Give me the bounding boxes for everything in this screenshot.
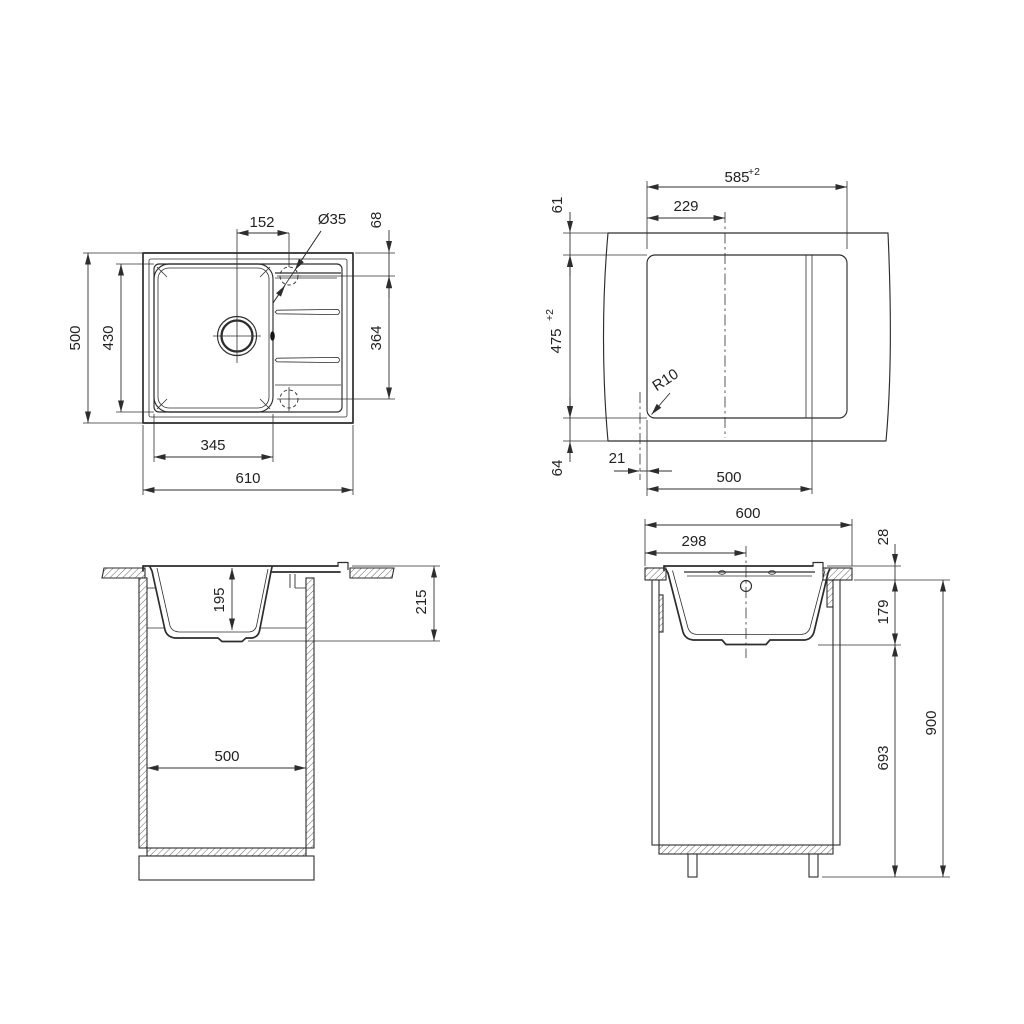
- dim-610: 610: [143, 425, 353, 495]
- dim-label-215: 215: [413, 589, 430, 614]
- sink-depression-edge: [154, 264, 342, 412]
- overflow-mark: [270, 331, 275, 341]
- dim-64: 64: [549, 397, 608, 476]
- dim-label-68: 68: [368, 212, 385, 229]
- cabinet-leg-right: [809, 854, 818, 877]
- dim-label-229: 229: [673, 198, 698, 215]
- cabinet-section: [139, 578, 314, 880]
- cutout-rect: [647, 255, 847, 418]
- dim-label-500: 500: [67, 325, 84, 350]
- dim-label-64: 64: [549, 460, 566, 477]
- drainboard: [275, 273, 341, 385]
- dim-label-d35: Ø35: [318, 211, 346, 228]
- countertop-left-block: [645, 568, 666, 580]
- cabinet-plinth: [139, 856, 314, 880]
- dim-label-r10: R10: [649, 366, 681, 395]
- dim-900: 900: [923, 580, 943, 877]
- dim-label-21: 21: [609, 450, 626, 467]
- dim-345: 345: [154, 414, 273, 462]
- dim-229: 229: [647, 198, 725, 218]
- sink-rim-line: [149, 259, 347, 417]
- dim-label-195: 195: [211, 587, 228, 612]
- drainboard-groove: [275, 357, 340, 362]
- dim-693: 693: [822, 645, 950, 877]
- dim-500-cutout: 500: [647, 469, 812, 489]
- dim-600: 600: [645, 505, 852, 566]
- dim-364: 364: [301, 276, 395, 399]
- faucet-hole-bottom: [277, 387, 301, 411]
- dim-500-front: 500: [147, 748, 306, 768]
- bowl-outer-line: [154, 264, 273, 412]
- dim-475: 475 +2: [544, 255, 647, 418]
- front-view: 195 215 500: [102, 563, 440, 881]
- top-view: 152 Ø35 68 364 500: [67, 211, 395, 495]
- dim-label-179: 179: [875, 599, 892, 624]
- countertop-left-section: [102, 568, 145, 578]
- dim-label-475-tol: +2: [544, 309, 556, 321]
- faucet-hole-top: [277, 267, 301, 285]
- dim-d35: Ø35: [273, 211, 346, 303]
- dim-label-430: 430: [100, 325, 117, 350]
- dim-298: 298: [645, 533, 746, 553]
- dim-label-298: 298: [681, 533, 706, 550]
- sink-section: [143, 563, 348, 642]
- dim-label-900: 900: [923, 710, 940, 735]
- cabinet-side-section: [652, 580, 840, 877]
- dim-label-693: 693: [875, 745, 892, 770]
- drainboard-groove: [275, 309, 340, 314]
- dim-152: 152: [237, 214, 289, 363]
- cabinet-side-wall-left: [652, 580, 659, 845]
- dim-68: 68: [300, 212, 395, 298]
- side-view: 600 298 28 179 693 900: [645, 505, 950, 877]
- dim-label-610: 610: [235, 470, 260, 487]
- dim-430: 430: [100, 264, 154, 412]
- dim-label-364: 364: [368, 325, 385, 350]
- cabinet-bottom: [147, 848, 306, 856]
- dim-61: 61: [549, 197, 647, 276]
- dim-label-475: 475: [548, 328, 565, 353]
- dim-r10: R10: [649, 366, 681, 415]
- dim-label-500-cutout: 500: [716, 469, 741, 486]
- dim-label-28: 28: [875, 529, 892, 546]
- dim-195: 195: [211, 568, 232, 630]
- dim-label-585-tol: +2: [748, 166, 760, 178]
- dim-label-345: 345: [200, 437, 225, 454]
- dim-label-61: 61: [549, 197, 566, 214]
- dim-label-600: 600: [735, 505, 760, 522]
- cutout-view: 585 +2 229 61 475 +2 R10: [544, 166, 890, 496]
- sink-side-section: [655, 563, 835, 645]
- dim-215: 215: [248, 566, 440, 641]
- sink-outer-edge: [143, 253, 353, 423]
- dim-label-152: 152: [249, 214, 274, 231]
- cabinet-wall-right: [306, 578, 314, 848]
- cabinet-wall-left: [139, 578, 147, 848]
- countertop-right-section: [350, 568, 394, 578]
- bowl-inner-side: [673, 571, 826, 635]
- cabinet-leg-left: [688, 854, 697, 877]
- cabinet-side-wall-right: [833, 580, 840, 845]
- dim-label-500-front: 500: [214, 748, 239, 765]
- dim-label-585: 585: [724, 169, 749, 186]
- sink-technical-drawing: 152 Ø35 68 364 500: [0, 0, 1024, 1024]
- cabinet-side-bottom: [659, 845, 833, 854]
